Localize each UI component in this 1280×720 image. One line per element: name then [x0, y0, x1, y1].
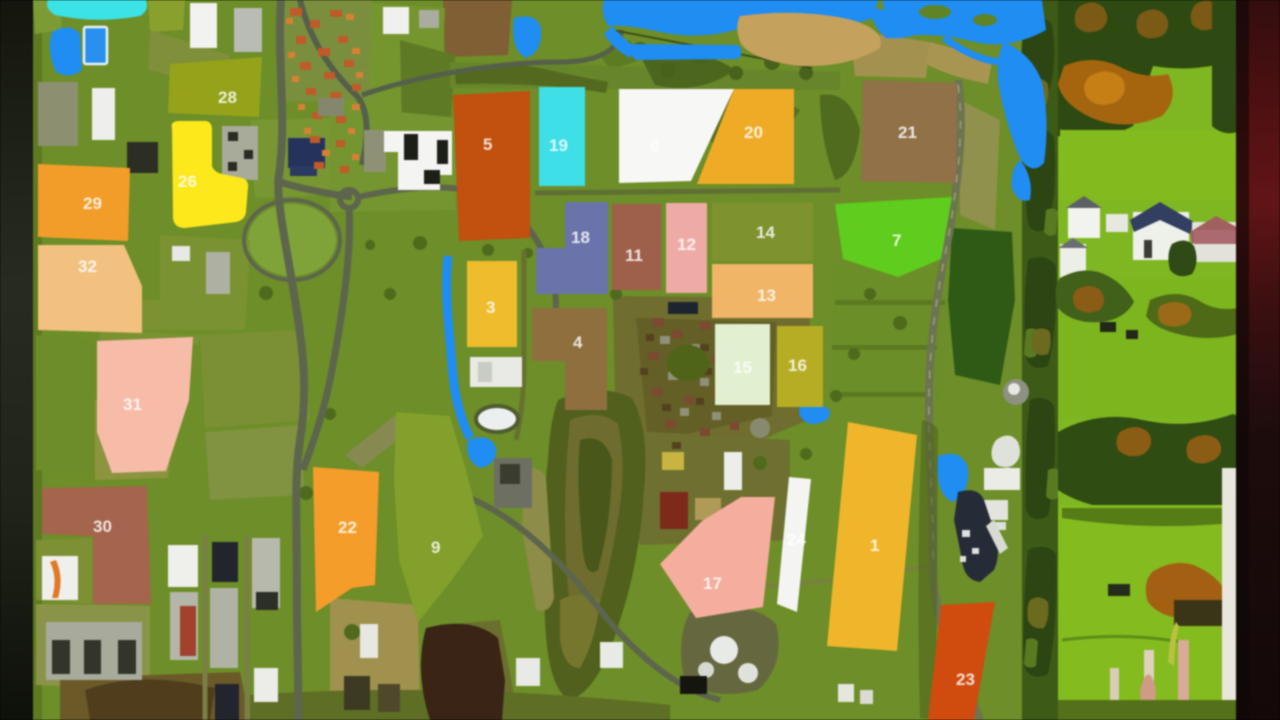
svg-text:15: 15: [733, 358, 752, 377]
svg-text:29: 29: [83, 194, 102, 213]
svg-text:26: 26: [178, 172, 197, 191]
svg-text:32: 32: [78, 257, 97, 276]
svg-text:4: 4: [573, 333, 583, 352]
svg-text:18: 18: [571, 228, 590, 247]
svg-text:23: 23: [956, 670, 975, 689]
svg-text:19: 19: [549, 136, 568, 155]
svg-text:24: 24: [787, 530, 806, 549]
svg-text:11: 11: [625, 246, 643, 265]
svg-text:1: 1: [870, 536, 879, 555]
svg-text:9: 9: [431, 538, 440, 557]
svg-text:31: 31: [123, 395, 142, 414]
svg-text:17: 17: [703, 574, 722, 593]
svg-text:22: 22: [338, 518, 357, 537]
svg-text:28: 28: [218, 88, 237, 107]
svg-text:14: 14: [756, 223, 775, 242]
svg-text:20: 20: [744, 123, 763, 142]
svg-text:7: 7: [892, 231, 901, 250]
svg-text:30: 30: [93, 517, 112, 536]
svg-text:3: 3: [486, 298, 495, 317]
svg-text:13: 13: [757, 286, 776, 305]
svg-text:16: 16: [788, 356, 807, 375]
svg-text:0: 0: [650, 137, 659, 156]
svg-text:12: 12: [677, 235, 696, 254]
svg-text:5: 5: [483, 135, 492, 154]
svg-text:21: 21: [898, 123, 917, 142]
